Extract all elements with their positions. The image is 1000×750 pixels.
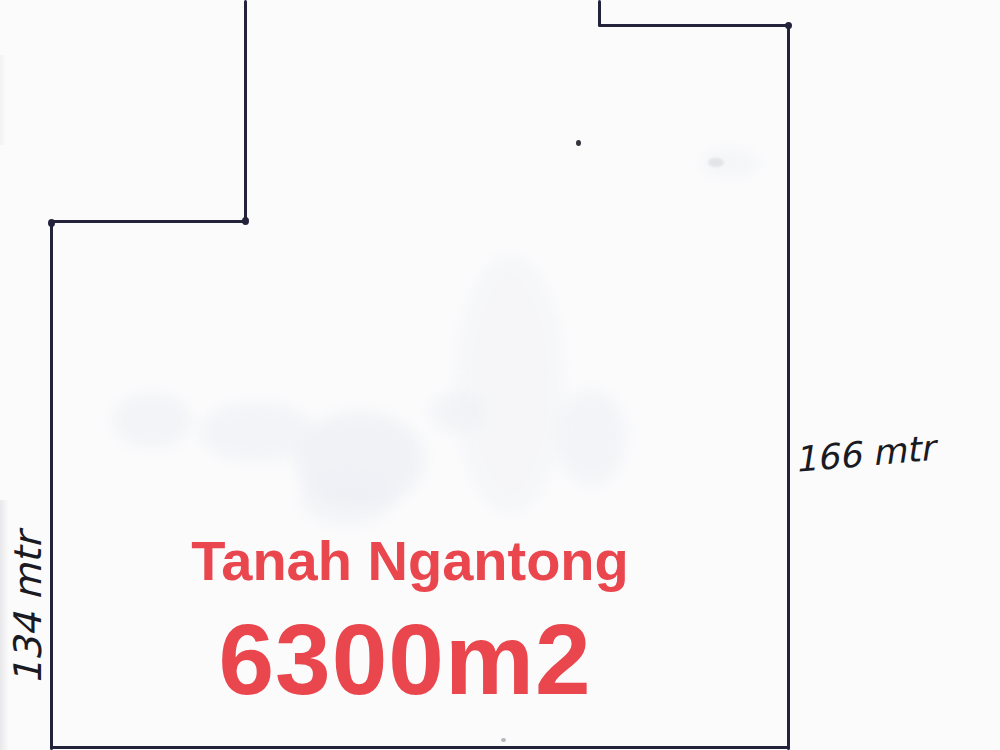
paper-smudge [455,255,565,515]
plot-area-value: 6300m2 [150,604,660,714]
plot-title: Tanah Ngantong [160,530,660,592]
paper-smudge [556,390,626,485]
plot-edge-bottom-horizontal [50,746,790,749]
ink-speck [576,140,581,146]
ink-blob [242,217,249,225]
land-sketch-paper: Tanah Ngantong 6300m2 134 mtr 166 mtr [0,0,1000,750]
plot-edge-topright-vertical [598,0,601,26]
ink-speck [501,738,506,742]
ink-blob [785,22,792,29]
left-dimension-label: 134 mtr [6,504,52,714]
scan-edge-artifact [0,55,6,145]
plot-edge-step-horizontal [50,220,247,223]
ink-blob [48,219,55,227]
plot-edge-topright-horizontal [598,24,790,27]
plot-edge-topleft-vertical [244,0,247,223]
paper-smudge [300,470,395,525]
plot-edge-right-vertical [787,24,790,750]
paper-smudge [112,393,192,448]
right-dimension-label: 166 mtr [793,428,936,480]
ink-speck [708,158,724,167]
